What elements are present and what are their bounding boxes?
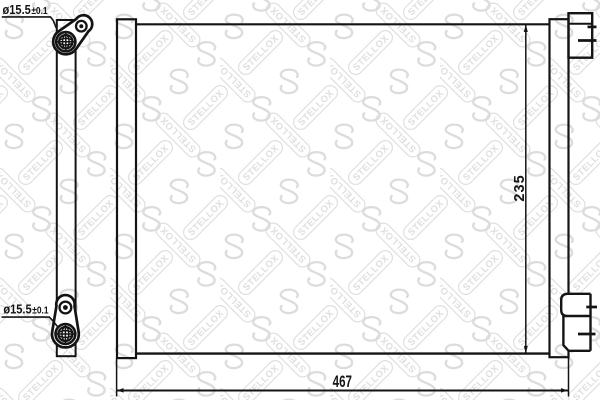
svg-text:ø15.5: ø15.5 bbox=[3, 302, 32, 317]
svg-text:±0.1: ±0.1 bbox=[32, 305, 48, 316]
svg-text:467: 467 bbox=[333, 373, 352, 392]
svg-text:±0.1: ±0.1 bbox=[31, 6, 47, 17]
svg-text:235: 235 bbox=[512, 174, 528, 202]
svg-text:ø15.5: ø15.5 bbox=[3, 2, 32, 17]
